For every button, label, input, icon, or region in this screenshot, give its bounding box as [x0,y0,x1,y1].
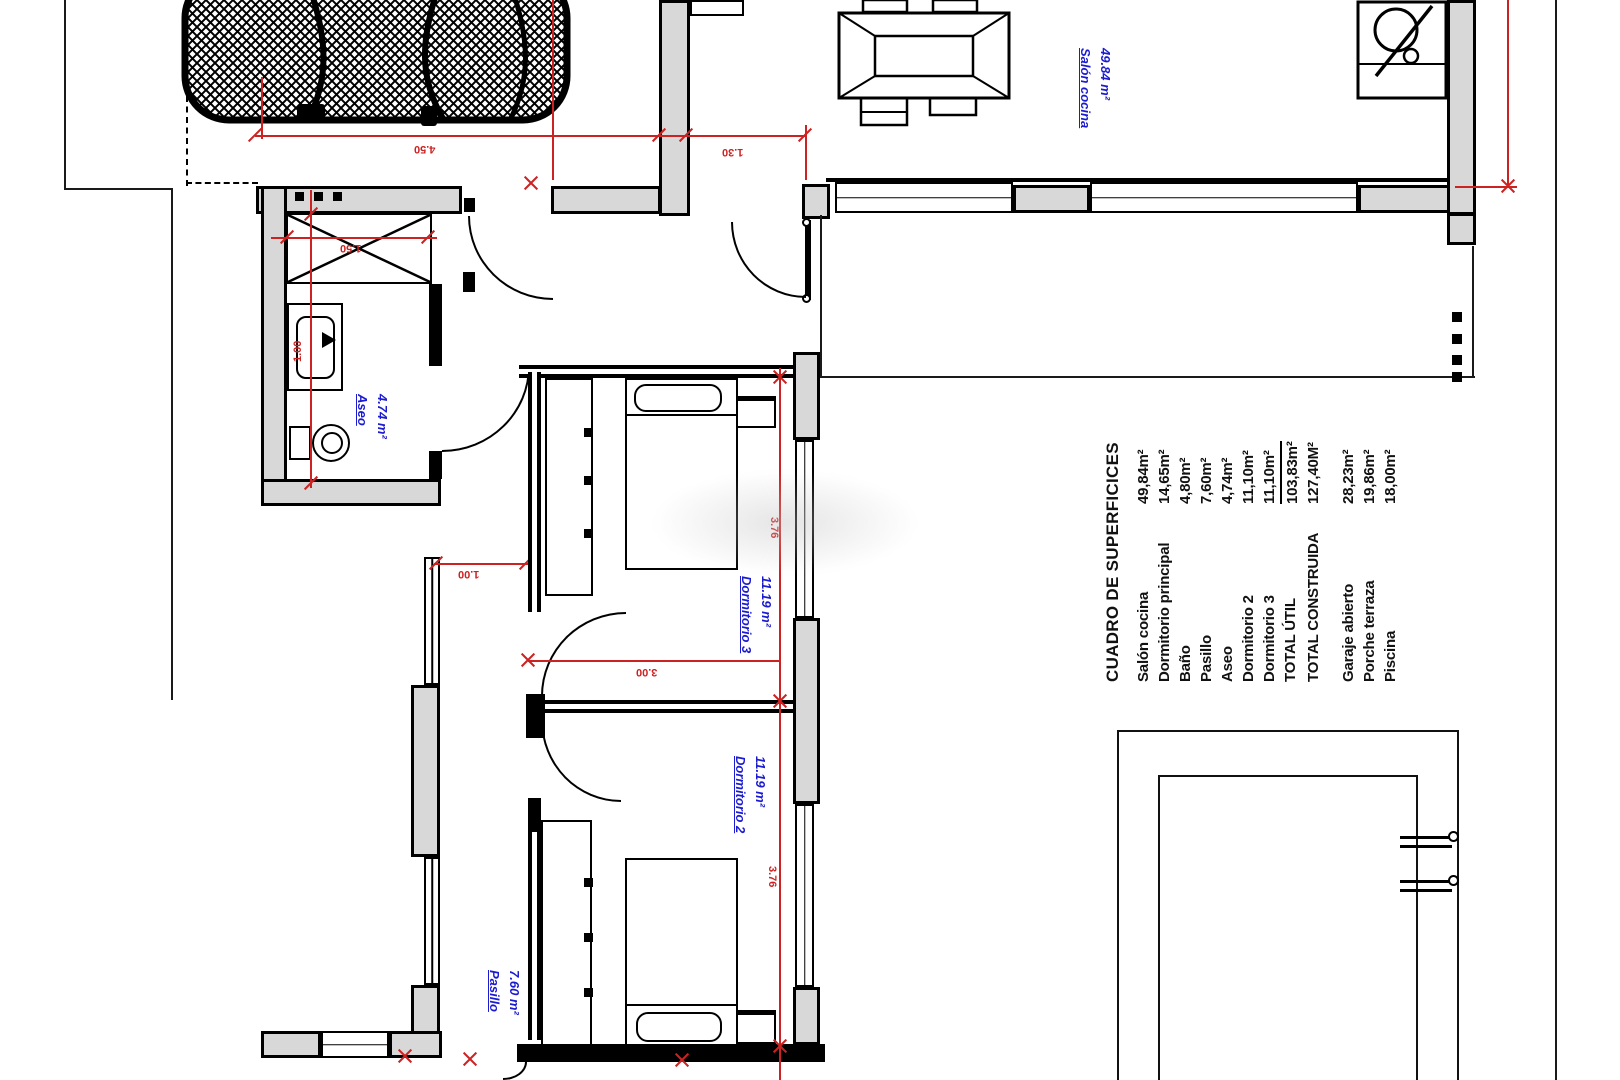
plot-boundary-line [64,188,172,190]
west-wall-corner [411,985,440,1035]
bed-pillow [634,384,722,412]
pool-ladder-rail [1400,836,1452,839]
room-area: 11.19 m² [756,576,776,668]
row-value: 7,60m² [1196,458,1217,504]
salon-wall-pier [802,184,830,219]
sink-tap [322,332,336,348]
wall-vent [314,192,323,201]
wardrobe-handle [584,988,593,997]
row-value: 11,10m² [1259,450,1280,504]
row-value: 14,65m² [1154,450,1175,504]
row-label: TOTAL ÚTIL [1280,504,1303,682]
wall-vent [333,192,342,201]
wardrobe-dorm3 [545,378,593,596]
window [795,804,814,987]
dimension-text-aseo-width: 1.00 [292,341,304,362]
plot-boundary-line [171,188,173,700]
table-row: Garaje abierto 28,23m² [1338,380,1359,682]
salon-wall-stub [1447,213,1476,245]
row-value: 18,00m² [1380,450,1401,504]
wing-left-wall [528,372,541,612]
row-label: TOTAL CONSTRUIDA [1303,504,1324,682]
wall-vent [295,192,304,201]
room-label-dormitorio3: 11.19 m² Dormitorio 3 [736,576,776,668]
pool-ladder-rail [1400,880,1452,883]
door-jamb [464,198,475,212]
table-row: Dormitorio 3 11,10m² [1259,380,1280,682]
table-row: Baño 4,80m² [1175,380,1196,682]
pool-ladder-rail [1400,845,1452,848]
row-value: 4,74m² [1217,458,1238,504]
row-value: 28,23m² [1338,450,1359,504]
aseo-bottom-wall [261,479,441,506]
dimension-text-entry-width: 1.30 [722,146,743,158]
floor-plan-canvas: 4.50 1.30 1.50 1.00 4.74 m² Aseo 1.00 [0,0,1620,1080]
aseo-door-swing-arc [442,366,530,452]
aseo-left-wall [261,186,287,506]
dimension-line-shower [271,237,437,239]
room-area: 7.60 m² [504,970,524,1024]
porch-fence-post [1452,355,1462,365]
room-area: 4.74 m² [372,394,392,452]
dimension-line-hall [434,563,528,565]
west-wall [411,685,440,857]
aseo-partition-wall [429,284,442,366]
dimension-line-aseo-width [310,190,312,488]
porch-edge-line [820,215,822,378]
row-label: Dormitorio 2 [1238,504,1259,682]
room-label-pasillo: 7.60 m² Pasillo [484,970,524,1024]
plot-boundary-line [1555,0,1557,1080]
row-value: 127,40M² [1303,442,1324,504]
row-value: 103,83m² [1280,441,1303,504]
salon-door-swing-arc [731,222,806,298]
wing-east-wall [793,987,820,1045]
salon-window [1090,182,1358,213]
row-label: Piscina [1380,504,1401,682]
row-value: 11,10m² [1238,450,1259,504]
dorm3-top-wall [519,365,813,378]
row-label: Aseo [1217,504,1238,682]
watermark-smudge [650,470,920,575]
wing-east-wall [793,352,820,440]
room-name: Salón cocina [1075,48,1095,128]
pool-ladder-rail [1400,889,1452,892]
barbecue-fixture-drawing [1356,0,1450,100]
pool-ladder-knob [1448,831,1459,842]
table-row: Dormitorio principal 14,65m² [1154,380,1175,682]
entry-door-swing-arc [468,216,553,300]
dimension-text-dorm2-depth: 3.76 [766,866,778,887]
table-row: Porche terraza 19,86m² [1359,380,1380,682]
wardrobe-handle [584,529,593,538]
window [321,1031,389,1058]
room-name: Pasillo [484,970,504,1024]
dimension-text-hall: 1.00 [458,568,479,580]
row-label: Dormitorio principal [1154,504,1175,682]
dimension-extension-line [1507,0,1509,188]
room-area: 49.84 m² [1095,48,1115,128]
row-label: Salón cocina [1133,504,1154,682]
room-area: 11.19 m² [750,756,770,848]
toilet-bowl-inner [321,432,343,454]
dimension-line-garage [255,135,807,137]
surfaces-table: CUADRO DE SUPERFICICES Salón cocina 49,8… [1103,380,1465,682]
dimension-extension-line [552,0,554,180]
wardrobe-handle [584,878,593,887]
room-name: Dormitorio 2 [730,756,750,848]
table-row: Salón cocina 49,84m² [1133,380,1154,682]
plot-boundary-line [64,0,66,190]
table-row-total-util: TOTAL ÚTIL 103,83m² [1280,380,1303,682]
dimension-text-shower: 1.50 [340,242,361,254]
window [424,557,440,685]
porch-edge-line [820,376,1475,378]
bed-blanket-line [625,1004,738,1006]
aseo-partition-wall [429,451,442,479]
south-door-swing-arc [503,1062,527,1080]
room-name: Dormitorio 3 [736,576,756,668]
row-value: 19,86m² [1359,450,1380,504]
bed-blanket-line [625,414,738,416]
porch-fence-post [1452,312,1462,322]
dimension-text-garage-width: 4.50 [414,143,435,155]
pool-ladder-knob [1448,875,1459,886]
east-wall [1447,0,1476,215]
dining-table-drawing [836,0,1012,132]
room-name: Aseo [352,394,372,452]
wing-left-wall [528,832,541,1040]
row-label: Dormitorio 3 [1259,504,1280,682]
wardrobe-handle [584,476,593,485]
table-row: Aseo 4,74m² [1217,380,1238,682]
row-value: 49,84m² [1133,450,1154,504]
door-jamb [463,272,475,292]
dorm2-door-swing-arc [541,720,621,802]
porch-edge-line [1472,246,1474,378]
table-row: Pasillo 7,60m² [1196,380,1217,682]
dimension-text-rooms-width: 3.00 [636,666,657,678]
table-row-total-construida: TOTAL CONSTRUIDA 127,40M² [1303,380,1324,682]
room-label-dormitorio2: 11.19 m² Dormitorio 2 [730,756,770,848]
pool-basin-outline [1158,775,1418,1080]
table-row: Piscina 18,00m² [1380,380,1401,682]
south-west-wall [261,1031,321,1058]
row-label: Porche terraza [1359,504,1380,682]
surfaces-table-title: CUADRO DE SUPERFICICES [1103,380,1123,682]
room-label-aseo: 4.74 m² Aseo [352,394,392,452]
room-label-salon: 49.84 m² Salón cocina [1075,48,1115,128]
wall-pillar [690,0,744,16]
table-row: Dormitorio 2 11,10m² [1238,380,1259,682]
garage-wall [659,0,690,216]
door-pier [528,798,541,832]
wing-east-wall [793,618,820,804]
porch-fence-post [1452,334,1462,344]
toilet-cistern [289,426,311,460]
dorm3-door-swing-arc [541,612,626,696]
entry-wall [551,186,661,214]
row-label: Garaje abierto [1338,504,1359,682]
nightstand [736,1010,776,1044]
wardrobe-handle [584,428,593,437]
south-west-wall [389,1031,442,1058]
nightstand [736,396,776,428]
wardrobe-handle [584,933,593,942]
row-label: Pasillo [1196,504,1217,682]
row-label: Baño [1175,504,1196,682]
salon-wall [1013,185,1090,213]
row-value: 4,80m² [1175,458,1196,504]
garage-open-side-dashed-line [186,182,258,184]
salon-window [835,182,1013,213]
window [424,857,440,985]
car-top-view-drawing [179,0,577,128]
bed-pillow [636,1012,722,1042]
